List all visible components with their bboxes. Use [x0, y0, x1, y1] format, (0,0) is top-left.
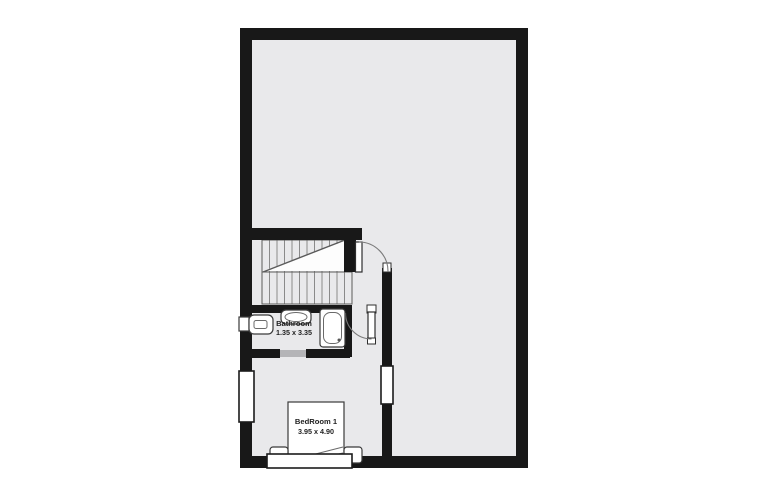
window-bottom-wall [267, 454, 352, 468]
stairwell-wall-stub [344, 240, 356, 272]
bedroom-top-wall-right [306, 349, 350, 358]
window-interior-wall [381, 366, 393, 404]
interior-wall-upper [382, 268, 392, 366]
bathtub-drain [338, 339, 341, 342]
bedroom-label: BedRoom 1 [295, 417, 338, 426]
landing-door-leaf [356, 242, 363, 272]
bathroom-label: Bathroom [276, 319, 312, 328]
bathroom-dimensions: 1.35 x 3.35 [276, 328, 312, 337]
toilet-cistern [239, 317, 249, 331]
toilet-bowl [249, 315, 273, 334]
interior-wall-lower [382, 404, 392, 456]
floor-plan-canvas: Bathroom 1.35 x 3.35 BedRoom 1 3.95 x 4.… [0, 0, 770, 500]
bedroom-top-wall-left [252, 349, 280, 358]
toilet [239, 315, 273, 334]
bathroom-opening [280, 350, 306, 357]
window-left-wall [239, 371, 254, 422]
floor-plan-drawing: Bathroom 1.35 x 3.35 BedRoom 1 3.95 x 4.… [0, 0, 770, 500]
bathtub [320, 309, 345, 347]
bedroom-dimensions: 3.95 x 4.90 [298, 427, 334, 436]
stairwell-top-wall [240, 228, 362, 240]
bathroom-door-leaf [368, 312, 375, 340]
